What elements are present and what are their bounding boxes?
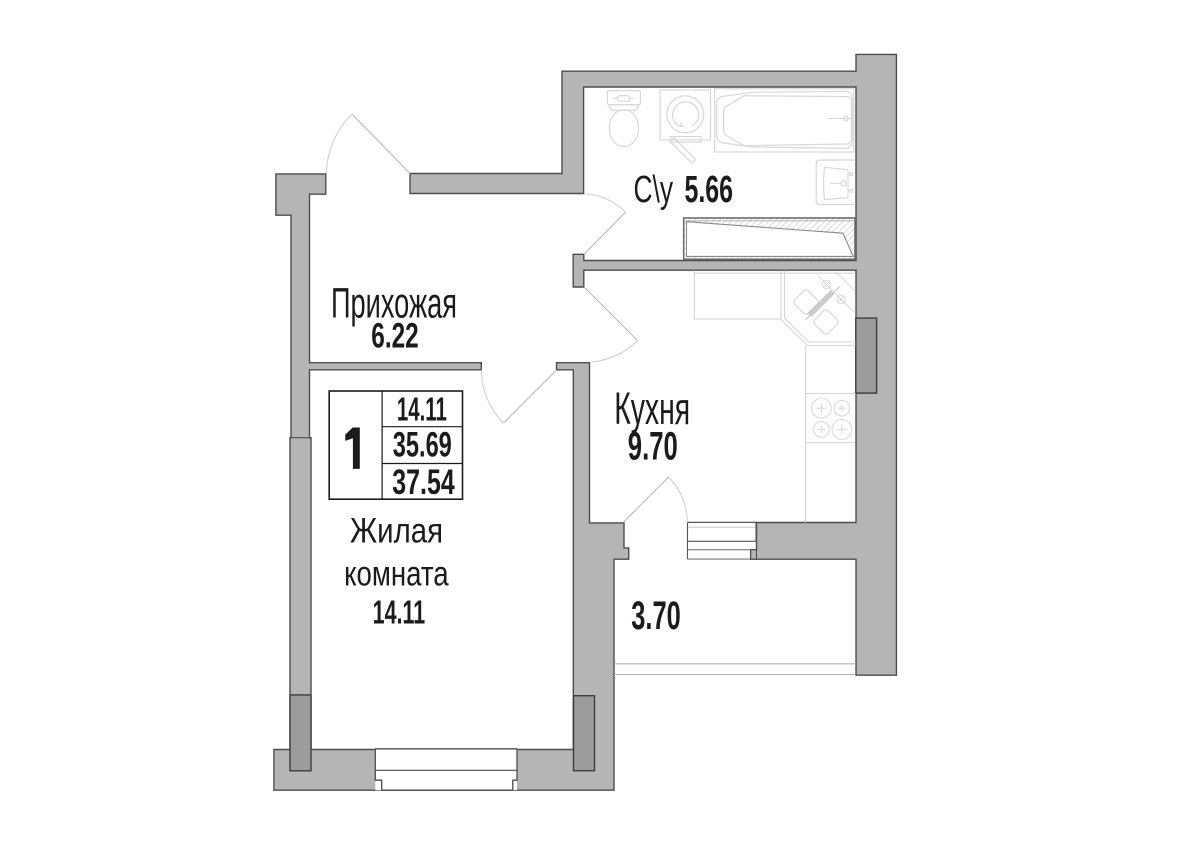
svg-text:35.69: 35.69: [393, 425, 452, 465]
svg-text:комната: комната: [344, 554, 449, 593]
svg-text:9.70: 9.70: [628, 425, 678, 469]
svg-text:37.54: 37.54: [392, 462, 455, 502]
svg-text:С\у: С\у: [634, 169, 674, 211]
svg-text:14.11: 14.11: [373, 595, 426, 632]
svg-text:Жилая: Жилая: [350, 511, 443, 550]
svg-text:5.66: 5.66: [685, 169, 734, 211]
svg-text:3.70: 3.70: [631, 594, 681, 638]
svg-text:6.22: 6.22: [371, 316, 418, 355]
svg-text:14.11: 14.11: [397, 392, 447, 429]
